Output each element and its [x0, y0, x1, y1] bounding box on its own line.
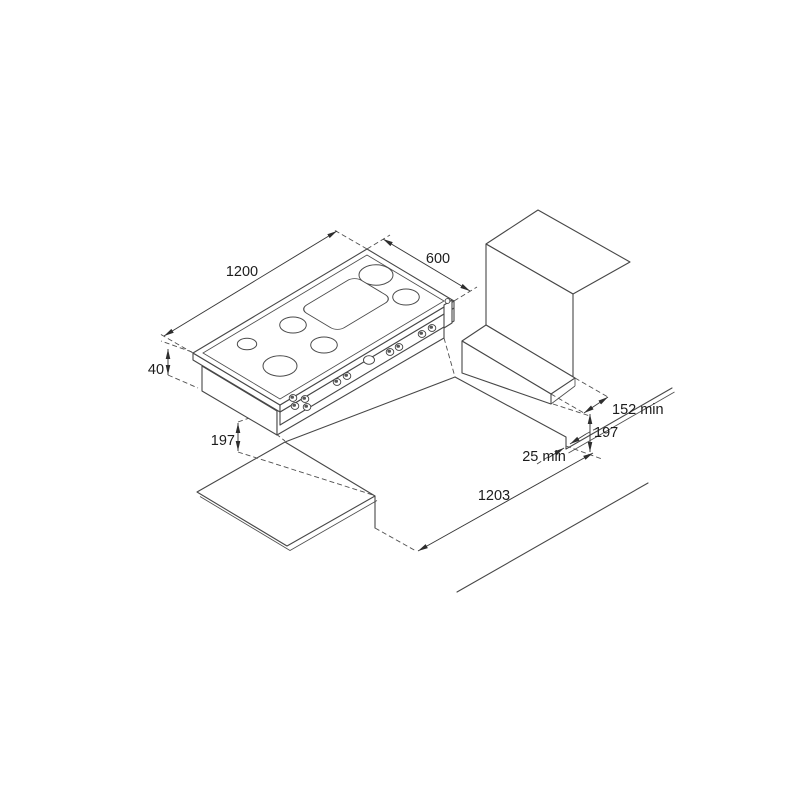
control-knob	[386, 349, 394, 356]
burner-small-left	[237, 338, 256, 350]
label-hob-width: 1200	[226, 264, 258, 280]
ext-600-bottom	[454, 287, 477, 301]
control-knob	[291, 403, 299, 410]
control-knob	[333, 379, 341, 386]
bracket-plate	[444, 300, 452, 328]
label-step-height: 197	[594, 425, 618, 441]
ext-600-top	[367, 235, 390, 249]
label-hob-top-thickness: 40	[148, 362, 164, 378]
installation-diagram: 1200 600 40 197 152 min 197 25 min 1203	[0, 0, 800, 800]
ignition-plate	[364, 356, 375, 365]
ext-152-right	[575, 378, 608, 397]
control-knob	[301, 396, 309, 403]
ext-1200-right	[334, 230, 367, 249]
ext-shared-bottom-right	[566, 446, 602, 459]
worktop-right-front-edge	[566, 388, 672, 449]
control-knob	[303, 404, 311, 411]
control-knob	[289, 395, 297, 402]
technical-drawing-page: 1200 600 40 197 152 min 197 25 min 1203	[0, 0, 800, 800]
control-knob	[395, 344, 403, 351]
burner-large-front-left	[263, 356, 297, 376]
label-hob-depth: 600	[426, 251, 450, 267]
label-side-gap: 25 min	[522, 449, 566, 465]
dim-line-152	[584, 397, 608, 413]
burner-medium-back-left	[280, 317, 307, 333]
control-knob	[428, 325, 436, 332]
label-cutout-length: 1203	[478, 488, 510, 504]
ext-1203-left	[375, 528, 416, 551]
label-rear-clearance: 152 min	[612, 402, 664, 418]
projection-hob-to-cutout-right	[444, 338, 455, 377]
control-knob	[418, 331, 426, 338]
bracket-stud	[445, 299, 450, 304]
control-knob	[343, 373, 351, 380]
burner-medium-front-center	[311, 337, 338, 353]
leader-197-right-top	[553, 404, 590, 416]
ext-40-top	[161, 341, 192, 352]
burner-medium-front-right	[393, 289, 420, 305]
label-hob-chassis-depth: 197	[211, 433, 235, 449]
worktop-left-slab	[197, 442, 375, 546]
ext-152-left	[551, 394, 584, 413]
ext-40-bottom	[168, 375, 198, 388]
